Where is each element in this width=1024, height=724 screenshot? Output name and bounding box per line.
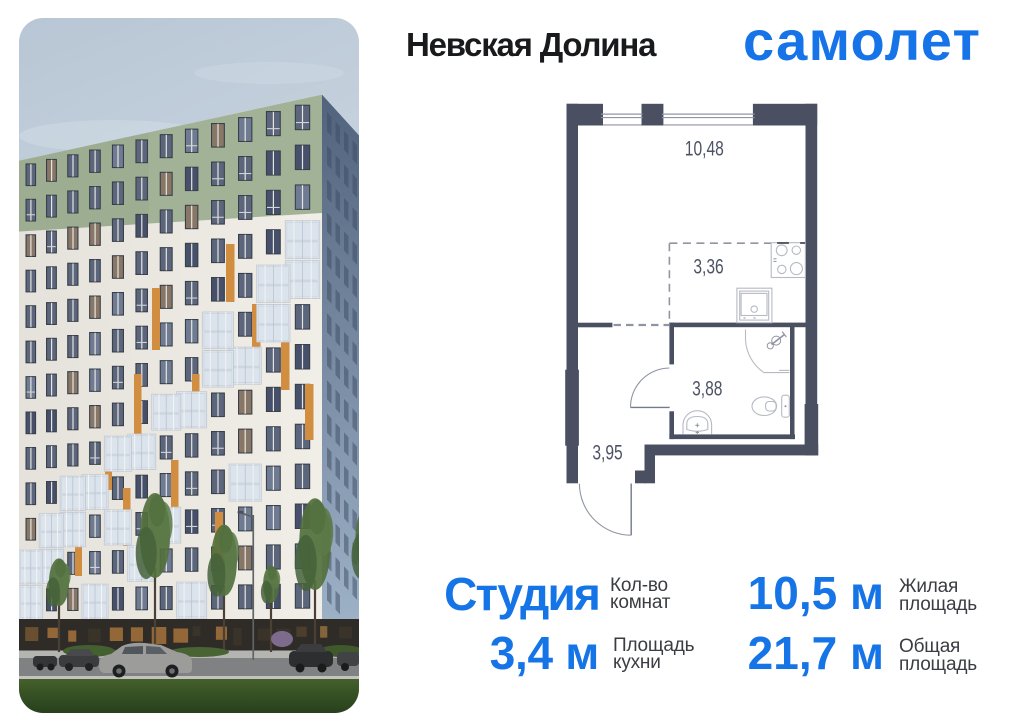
svg-text:10,48: 10,48 <box>685 136 724 160</box>
svg-text:3,88: 3,88 <box>692 376 722 400</box>
svg-text:3,36: 3,36 <box>693 254 723 278</box>
svg-text:3,95: 3,95 <box>592 440 622 464</box>
